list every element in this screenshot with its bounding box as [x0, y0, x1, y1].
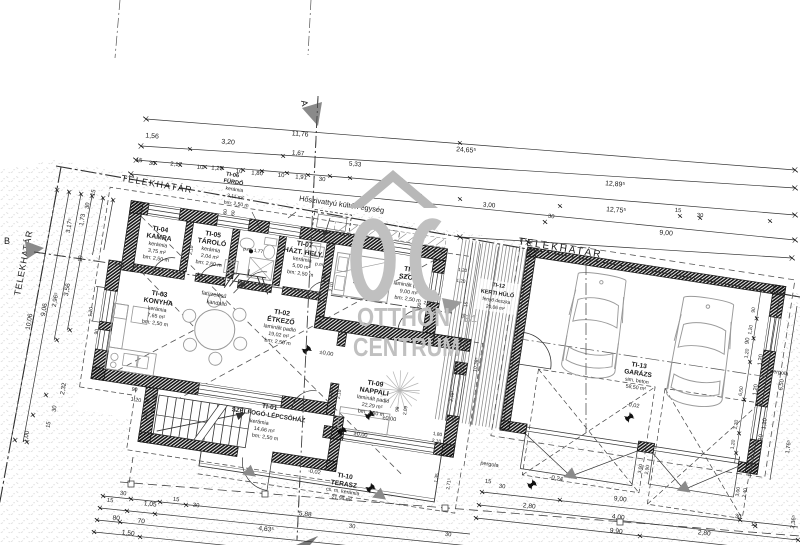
svg-text:30: 30: [85, 202, 92, 209]
svg-text:2,80: 2,80: [522, 502, 536, 510]
svg-text:3,00: 3,00: [483, 202, 496, 210]
svg-text:2,80: 2,80: [697, 529, 711, 537]
svg-text:30: 30: [193, 503, 200, 510]
svg-text:1,67: 1,67: [292, 150, 305, 158]
svg-text:CENTRUM: CENTRUM: [353, 332, 460, 362]
svg-text:10: 10: [236, 169, 244, 176]
svg-text:90: 90: [145, 398, 152, 405]
svg-text:B1: B1: [464, 314, 477, 325]
svg-text:15: 15: [751, 522, 758, 529]
svg-text:70: 70: [137, 518, 145, 526]
svg-text:80: 80: [112, 515, 120, 523]
svg-text:9,00: 9,00: [613, 495, 627, 503]
svg-text:90: 90: [131, 387, 138, 394]
svg-text:30: 30: [445, 532, 452, 539]
svg-text:15: 15: [485, 479, 492, 486]
svg-text:30: 30: [52, 405, 59, 412]
svg-text:1,56: 1,56: [145, 133, 159, 141]
svg-text:90: 90: [751, 307, 758, 314]
svg-text:9,00: 9,00: [659, 230, 673, 238]
svg-text:30: 30: [349, 524, 356, 531]
svg-text:10: 10: [197, 165, 205, 172]
svg-text:10: 10: [278, 173, 286, 180]
svg-text:9,90: 9,90: [609, 527, 623, 535]
svg-text:30: 30: [735, 514, 742, 521]
svg-text:30: 30: [548, 214, 555, 221]
svg-text:1,91: 1,91: [295, 175, 308, 182]
svg-text:30: 30: [319, 177, 327, 184]
svg-text:30: 30: [499, 484, 506, 491]
svg-text:30: 30: [149, 161, 157, 168]
svg-text:15: 15: [91, 189, 98, 196]
svg-text:11,76: 11,76: [292, 130, 309, 138]
svg-text:B: B: [4, 236, 10, 246]
svg-text:1,80: 1,80: [251, 171, 264, 178]
svg-text:1,50: 1,50: [121, 529, 135, 537]
svg-text:1,05: 1,05: [143, 500, 157, 508]
svg-text:15: 15: [107, 498, 114, 505]
svg-text:30: 30: [697, 213, 704, 219]
svg-text:15: 15: [173, 497, 180, 504]
svg-text:30: 30: [120, 491, 127, 498]
svg-text:15: 15: [675, 208, 682, 214]
svg-text:15: 15: [136, 158, 144, 165]
svg-text:5,33: 5,33: [349, 161, 362, 169]
svg-text:2,17: 2,17: [170, 162, 183, 169]
svg-text:90: 90: [745, 337, 752, 344]
svg-text:15: 15: [46, 421, 53, 428]
svg-text:5,88: 5,88: [298, 510, 312, 518]
svg-text:3,20: 3,20: [221, 139, 235, 147]
svg-text:OTTHON: OTTHON: [357, 302, 450, 332]
svg-text:1,20: 1,20: [211, 166, 224, 173]
svg-text:10: 10: [78, 255, 85, 262]
